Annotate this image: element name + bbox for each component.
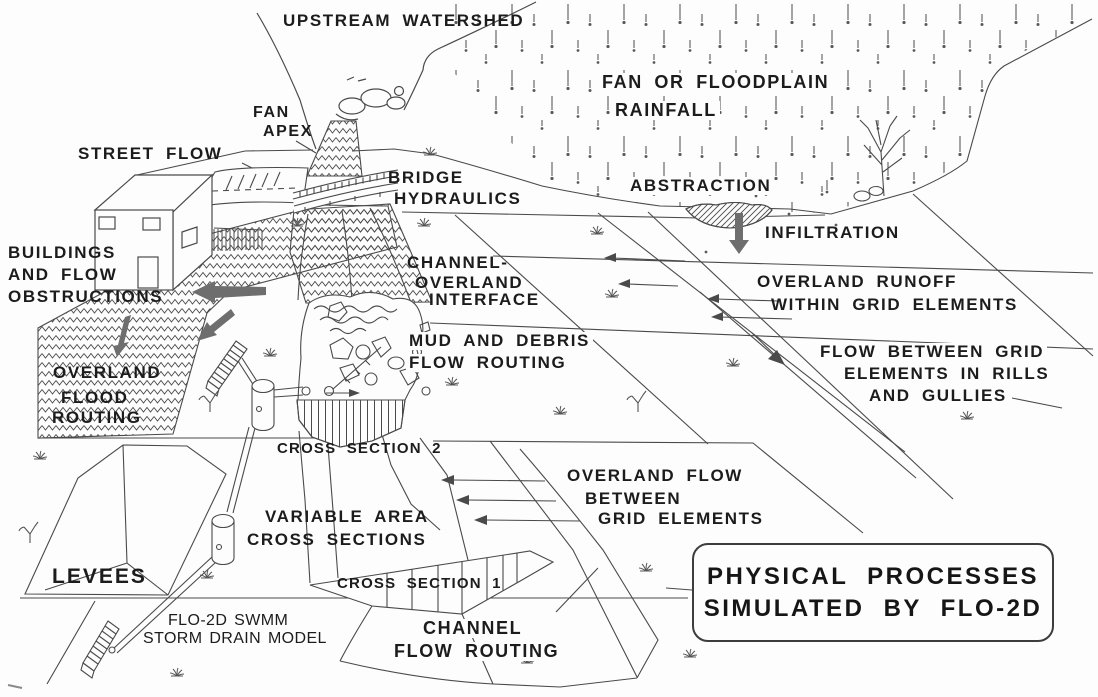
label-bridge-line2: HYDRAULICS [394,190,521,208]
label-buildings-line2: AND FLOW [8,266,117,284]
label-runoff-line1: OVERLAND RUNOFF [757,273,957,291]
label-upstream-watershed: UPSTREAM WATERSHED [283,12,524,30]
label-overland-between-line2: BETWEEN [585,490,681,508]
label-abstraction: ABSTRACTION [627,177,774,195]
title-line1: PHYSICAL PROCESSES [707,561,1039,593]
label-rills-line1: FLOW BETWEEN GRID [817,343,1047,361]
drain-inlet-cylinder-upper [252,380,274,431]
abstraction-basin [686,203,772,229]
label-rills-line2: ELEMENTS IN RILLS [841,365,1052,383]
label-rainfall-line1: FAN OR FLOODPLAIN [599,73,832,92]
label-swmm-line1: FLO-2D SWMM [168,613,288,630]
label-fan-apex-line1: FAN [253,105,290,122]
label-channel-routing-line1: CHANNEL [420,619,525,638]
label-buildings-line3: OBSTRUCTIONS [8,288,163,306]
label-channel-routing-line2: FLOW ROUTING [391,642,562,661]
label-street-flow: STREET FLOW [78,145,222,163]
label-overland-between-line1: OVERLAND FLOW [567,467,743,485]
label-runoff-line2: WITHIN GRID ELEMENTS [771,296,1018,314]
label-variable-line1: VARIABLE AREA [265,508,429,526]
drain-inlet-cylinder-lower [212,515,234,565]
label-mud-line1: MUD AND DEBRIS [406,332,593,350]
label-variable-line2: CROSS SECTIONS [247,531,426,549]
label-swmm-line2: STORM DRAIN MODEL [143,631,327,648]
street [203,168,308,207]
culvert-grate-upper [206,341,247,396]
label-interface-line1: CHANNEL- [407,254,509,272]
label-bridge-line1: BRIDGE [388,169,464,187]
label-infiltration: INFILTRATION [765,224,900,242]
label-fan-apex-line2: APEX [263,124,313,141]
label-mud-line2: FLOW ROUTING [406,354,569,372]
label-buildings-line1: BUILDINGS [8,244,116,262]
label-interface-line3: INTERFACE [429,291,540,309]
label-overland-between-line3: GRID ELEMENTS [598,510,764,528]
flo2d-physical-processes-diagram: UPSTREAM WATERSHED FAN OR FLOODPLAIN RAI… [0,0,1098,697]
label-cross-section-1: CROSS SECTION 1 [337,576,502,592]
label-overland-flood-line2: FLOOD [61,389,129,407]
label-cross-section-2: CROSS SECTION 2 [277,441,442,457]
label-rainfall-line2: RAINFALL [612,101,720,120]
label-rills-line3: AND GULLIES [866,387,1010,405]
label-overland-flood-line1: OVERLAND [53,364,161,382]
label-levees: LEVEES [52,566,147,588]
label-overland-flood-line3: ROUTING [52,409,142,427]
title-line2: SIMULATED BY FLO-2D [704,593,1043,625]
title-box: PHYSICAL PROCESSES SIMULATED BY FLO-2D [692,543,1054,642]
